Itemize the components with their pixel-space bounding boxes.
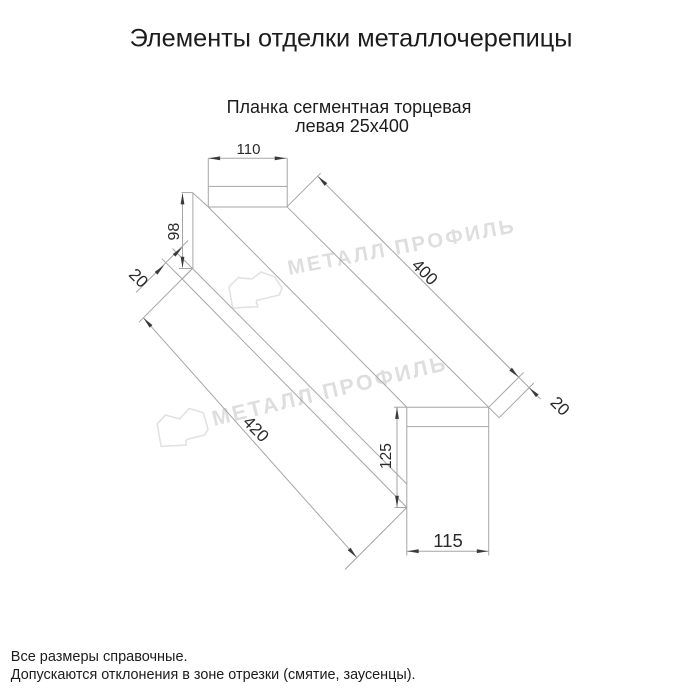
svg-text:115: 115	[433, 530, 463, 551]
svg-text:Элементы отделки металлочерепи: Элементы отделки металлочерепицы	[130, 24, 573, 52]
svg-text:левая 25х400: левая 25х400	[295, 116, 409, 136]
svg-text:Допускаются отклонения в зоне: Допускаются отклонения в зоне отрезки (с…	[11, 667, 416, 683]
svg-text:110: 110	[237, 141, 261, 158]
svg-text:98: 98	[166, 223, 183, 241]
svg-text:Планка сегментная торцевая: Планка сегментная торцевая	[227, 97, 472, 117]
svg-text:Все размеры справочные.: Все размеры справочные.	[11, 649, 188, 665]
svg-text:125: 125	[378, 443, 395, 469]
